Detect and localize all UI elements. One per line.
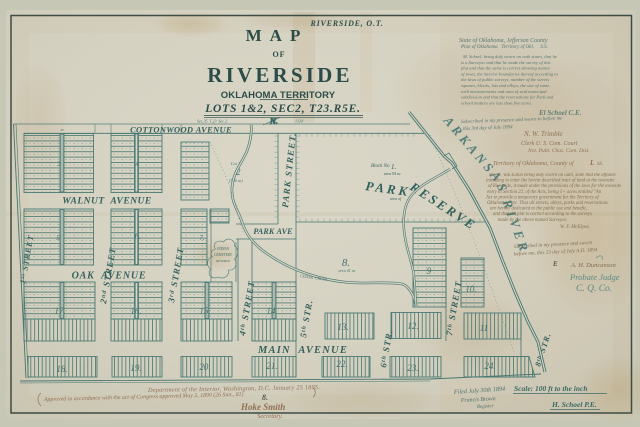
svg-text:and that the plat is correct a: and that the plat is correct according t… xyxy=(493,212,592,217)
svg-text:15.: 15. xyxy=(199,306,210,316)
svg-text:10.: 10. xyxy=(465,284,476,294)
svg-text:W. F. McElyea: W. F. McElyea xyxy=(560,225,589,230)
svg-text:8.: 8. xyxy=(262,393,268,402)
svg-text:9: 9 xyxy=(427,266,432,276)
svg-text:Scale: 100 ft to the inch: Scale: 100 ft to the inch xyxy=(514,384,588,393)
svg-text:is a Surveyor and that he made: is a Surveyor and that he made the surve… xyxy=(461,60,551,65)
svg-text:school matters are less than f: school matters are less than five acres. xyxy=(461,100,532,105)
svg-text:24.: 24. xyxy=(484,361,495,371)
svg-text:CEMETERY: CEMETERY xyxy=(214,253,233,257)
svg-text:SS.: SS. xyxy=(597,162,603,167)
svg-text:subdivision and that the reser: subdivision and that the reservations fo… xyxy=(461,95,554,100)
svg-text:Act to provide a temporary gov: Act to provide a temporary government fo… xyxy=(485,195,599,200)
svg-text:RESERVE: RESERVE xyxy=(215,259,231,263)
svg-text:Register: Register xyxy=(476,404,494,410)
svg-text:A. H. Duncanson: A. H. Duncanson xyxy=(570,262,616,269)
svg-text:L: L xyxy=(589,159,594,167)
svg-text:made by the above named Survey: made by the above named Surveyor. xyxy=(498,218,567,223)
svg-text:with measurements and area of: with measurements and area of said munic… xyxy=(461,89,547,94)
svg-text:State of Oklahoma, Jefferson C: State of Oklahoma, Jefferson County xyxy=(459,37,548,44)
svg-text:plat and that the same is corr: plat and that the same is correct showin… xyxy=(460,66,550,71)
svg-text:PARK AVE: PARK AVE xyxy=(253,227,292,236)
svg-text:1.: 1. xyxy=(391,163,397,171)
svg-text:18.: 18. xyxy=(56,364,67,374)
svg-text:of Riverside, it made under th: of Riverside, it made under the provisio… xyxy=(488,184,622,189)
svg-text:We, W. Van Eaton being duly sw: We, W. Van Eaton being duly sworn on oat… xyxy=(489,173,616,178)
svg-text:Hoke Smith: Hoke Smith xyxy=(240,402,285,412)
svg-text:N. W. Trimble: N. W. Trimble xyxy=(523,130,563,138)
svg-text:14.: 14. xyxy=(266,306,277,316)
svg-text:Secretary.: Secretary. xyxy=(257,413,283,420)
svg-text:LOTS 1&2, SEC2, T23.R5E.: LOTS 1&2, SEC2, T23.R5E. xyxy=(204,103,361,115)
svg-text:C. Q. Co.: C. Q. Co. xyxy=(576,284,612,294)
svg-text:area of: area of xyxy=(390,196,402,201)
svg-text:H. Schoel P.E.: H. Schoel P.E. xyxy=(551,400,597,409)
svg-text:23.: 23. xyxy=(407,363,418,373)
svg-text:13.: 13. xyxy=(337,322,348,332)
svg-text:Not. Publ. Chas. Com. Dist.: Not. Publ. Chas. Com. Dist. xyxy=(527,148,590,154)
svg-text:Block No: Block No xyxy=(371,164,390,169)
svg-text:intending to enter the herein: intending to enter the herein described … xyxy=(486,179,615,184)
svg-text:19.: 19. xyxy=(130,363,141,373)
svg-text:11: 11 xyxy=(480,323,488,333)
svg-text:(7.56 ac): (7.56 ac) xyxy=(229,179,243,183)
svg-text:RIVERSIDE: RIVERSIDE xyxy=(207,63,353,87)
svg-text:40: 40 xyxy=(60,128,64,132)
svg-text:area 41 ac: area 41 ac xyxy=(339,268,356,273)
svg-text:Clerk U. S. Com. Court: Clerk U. S. Com. Court xyxy=(521,141,578,147)
svg-text:Territory of Oklahoma, County: Territory of Oklahoma, County of xyxy=(493,160,575,167)
svg-text:6.: 6. xyxy=(135,231,142,241)
svg-text:22.: 22. xyxy=(336,359,347,369)
svg-text:4: 4 xyxy=(135,160,139,168)
svg-text:7.: 7. xyxy=(199,234,205,242)
svg-text:21.: 21. xyxy=(266,361,277,371)
svg-text:5: 5 xyxy=(56,234,60,242)
svg-text:area 94 ac: area 94 ac xyxy=(384,171,401,176)
svg-text:12.: 12. xyxy=(407,321,418,331)
svg-text:MAP: MAP xyxy=(246,26,309,45)
svg-text:Probate Judge: Probate Judge xyxy=(569,272,620,282)
svg-text:RIVERSIDE, O.T.: RIVERSIDE, O.T. xyxy=(309,19,383,28)
svg-text:17.: 17. xyxy=(54,306,65,316)
svg-text:16.: 16. xyxy=(130,306,141,316)
svg-text:INDIAN: INDIAN xyxy=(216,247,230,251)
svg-text:3: 3 xyxy=(56,160,61,168)
svg-text:COTTONWOOD AVENUE: COTTONWOOD AVENUE xyxy=(130,125,232,135)
svg-text:Sec.35 T.23 Sec.2: Sec.35 T.23 Sec.2 xyxy=(197,119,227,124)
svg-text:20.: 20. xyxy=(199,362,210,372)
svg-text:Oklahoma," etc. That all stree: Oklahoma," etc. That all streets, alleys… xyxy=(487,201,608,206)
svg-text:OF: OF xyxy=(272,50,285,59)
svg-text:MAIN AVENUE: MAIN AVENUE xyxy=(257,345,348,356)
svg-text:WALNUT AVENUE: WALNUT AVENUE xyxy=(62,197,152,207)
svg-text:are hereby dedicated to the pu: are hereby dedicated to the public use a… xyxy=(490,207,587,212)
svg-text:1320′: 1320′ xyxy=(295,119,304,124)
svg-text:entry to Section 22, of the Ac: entry to Section 22, of the Acts, being … xyxy=(487,190,602,195)
svg-text:Plan of Oklahoma Territory o: Plan of Oklahoma Territory of Okl. S.S. xyxy=(460,45,548,50)
svg-text:E: E xyxy=(552,260,558,268)
